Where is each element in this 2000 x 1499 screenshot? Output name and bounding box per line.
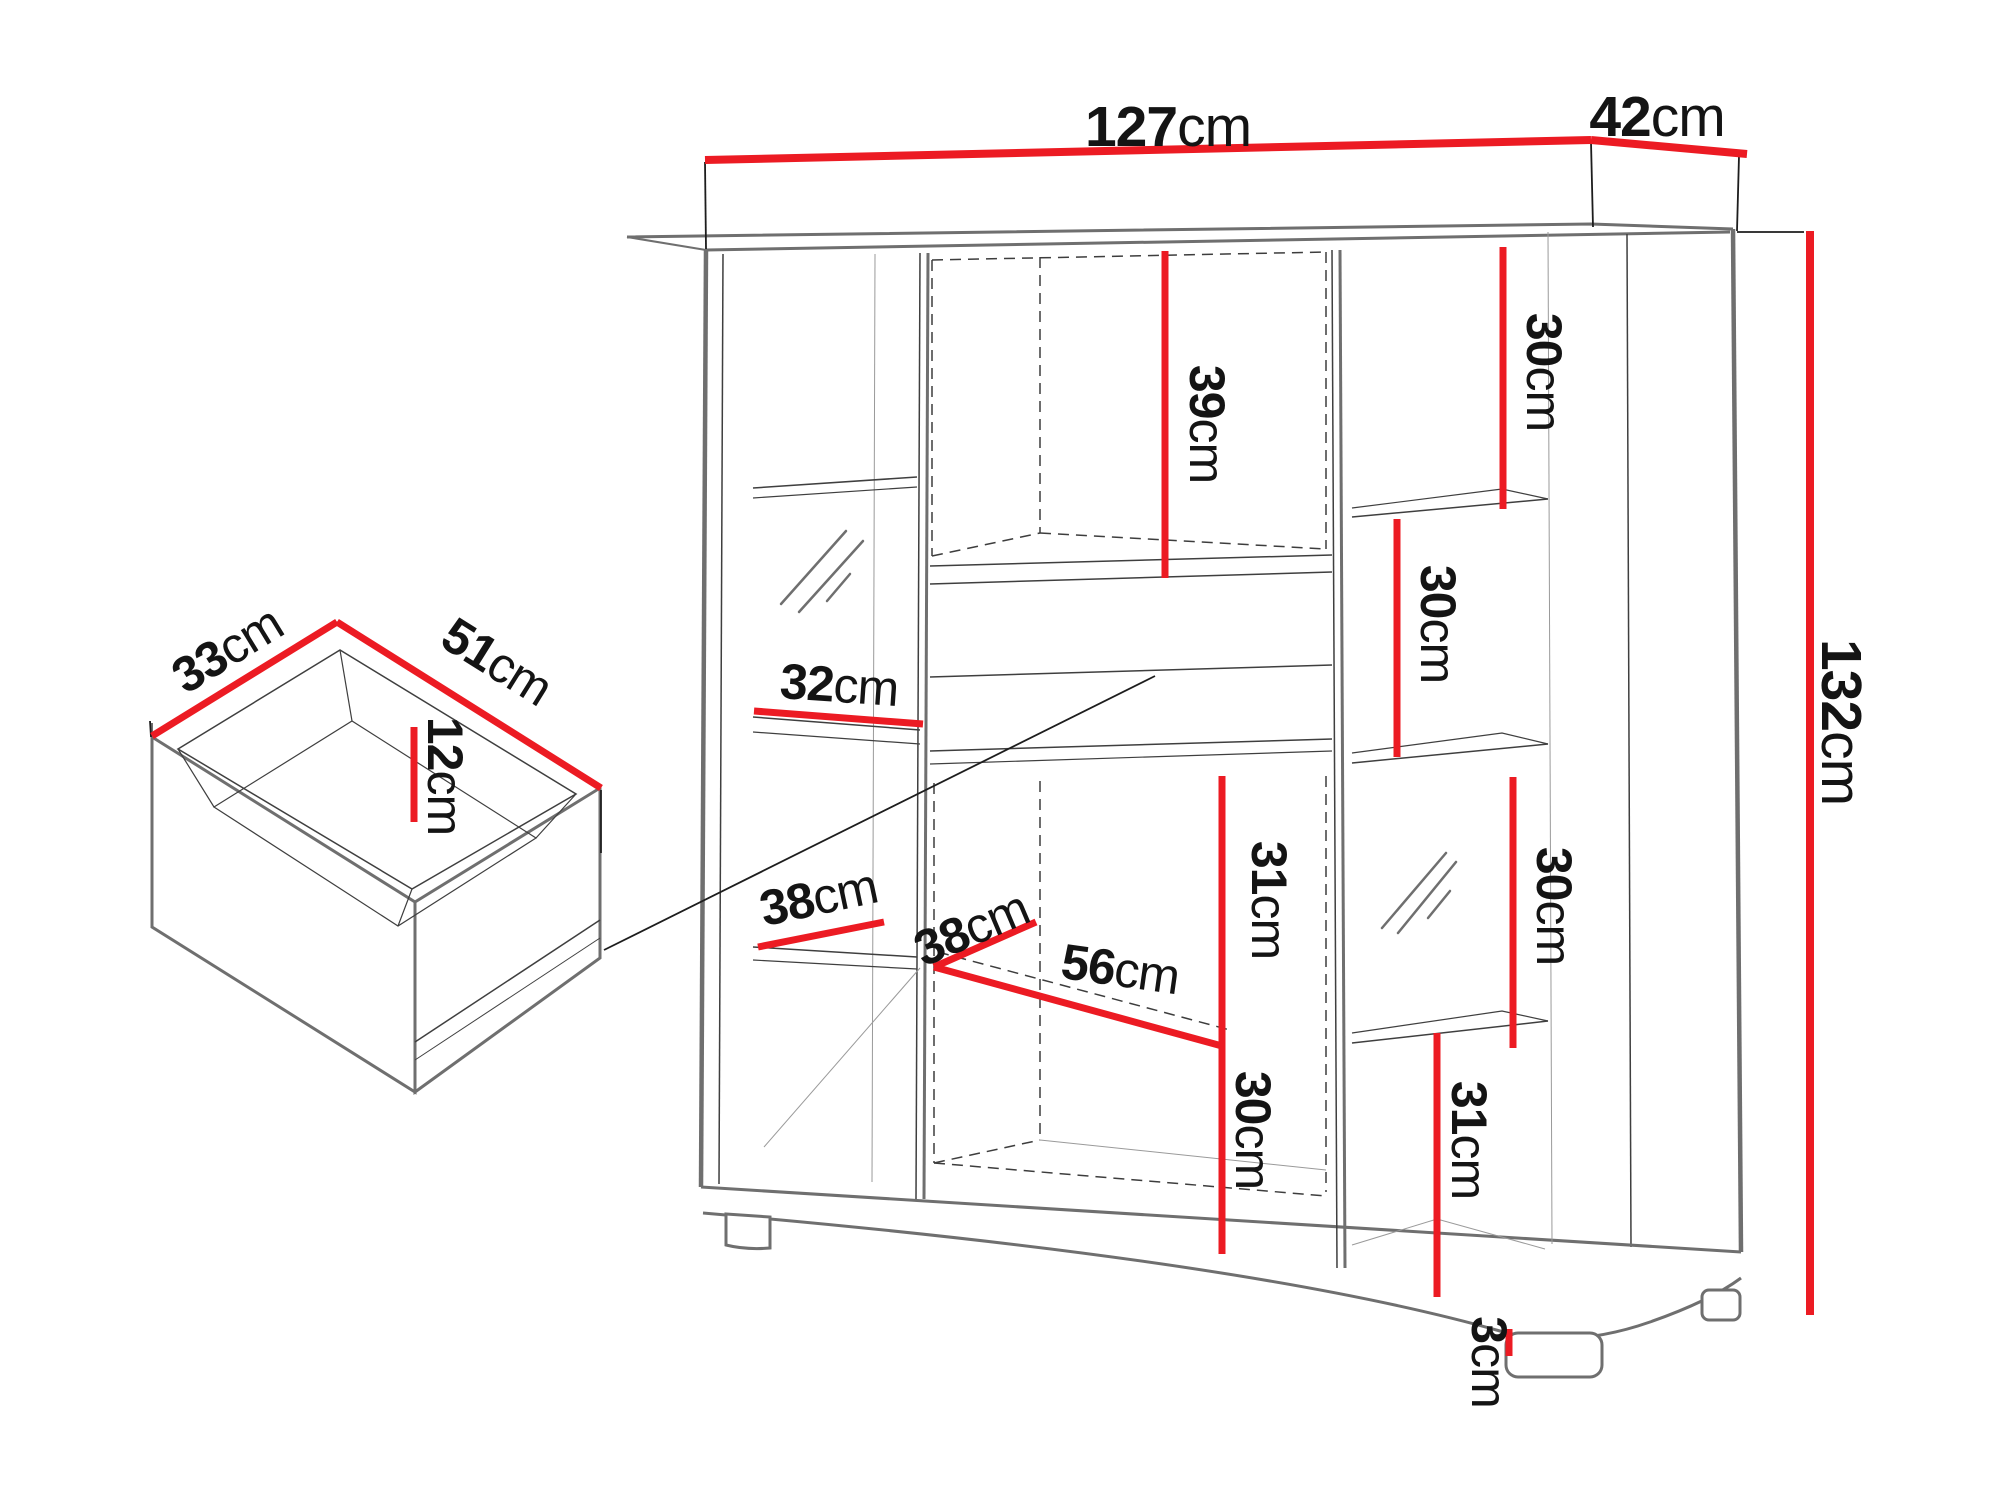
corner-shelf-front bbox=[1352, 499, 1548, 517]
dim-label-30-top: 30cm bbox=[1516, 313, 1572, 431]
tick-width-left bbox=[705, 162, 706, 249]
cabinet-feet bbox=[726, 1214, 1740, 1377]
foot-right-back bbox=[1702, 1290, 1740, 1320]
glass-stroke bbox=[1382, 853, 1446, 928]
shelf-line bbox=[753, 960, 917, 969]
left-column-shelves bbox=[753, 477, 920, 1147]
corner-shelf-top bbox=[1352, 1011, 1548, 1033]
niche-dashed-floor bbox=[1040, 533, 1326, 549]
corner-shelf-front bbox=[1352, 744, 1548, 763]
divider-left bbox=[924, 253, 928, 1199]
niche-dashed-floor bbox=[932, 533, 1040, 556]
dim-label-drawer-12: 12cm bbox=[417, 717, 473, 835]
divider-right-inner bbox=[1332, 250, 1337, 1268]
drawer-front-face bbox=[152, 737, 415, 1092]
foot-right bbox=[1506, 1333, 1602, 1377]
diagram-canvas: 127cm 42cm 132cm 39cm 30cm 30cm 30cm 32c… bbox=[0, 0, 2000, 1499]
dim-label-drawer-51: 51cm bbox=[432, 606, 562, 716]
dim-label-depth: 42cm bbox=[1589, 85, 1724, 149]
foot-left bbox=[726, 1214, 770, 1249]
center-middle-panel bbox=[930, 665, 1332, 764]
shelf-line bbox=[753, 732, 920, 744]
dim-label-3: 3cm bbox=[1461, 1316, 1517, 1407]
floor-corner-line bbox=[764, 968, 920, 1147]
panel-top-line bbox=[930, 665, 1332, 677]
dim-label-31-right: 31cm bbox=[1441, 1081, 1497, 1199]
cabinet-left-stile-inner bbox=[719, 254, 723, 1184]
glass-stroke bbox=[781, 531, 846, 604]
dim-label-56: 56cm bbox=[1058, 933, 1183, 1005]
divider-right bbox=[1340, 250, 1345, 1268]
cabinet-top-left-join bbox=[627, 237, 706, 250]
cabinet-right-edge bbox=[1733, 229, 1741, 1252]
shelf-line bbox=[753, 477, 917, 488]
cabinet-left-edge bbox=[701, 250, 706, 1187]
dim-label-39: 39cm bbox=[1179, 365, 1235, 483]
dim-label-30-middle: 30cm bbox=[1410, 565, 1466, 683]
corner-shelf-top bbox=[1352, 733, 1548, 753]
dim-label-31-center: 31cm bbox=[1241, 841, 1297, 959]
shelf-line bbox=[930, 572, 1332, 584]
shelf-line bbox=[930, 555, 1332, 566]
furniture-dimension-diagram: 127cm 42cm 132cm 39cm 30cm 30cm 30cm 32c… bbox=[0, 0, 2000, 1499]
dimension-labels: 127cm 42cm 132cm 39cm 30cm 30cm 30cm 32c… bbox=[162, 85, 1873, 1408]
dim-label-30-bottom: 30cm bbox=[1225, 1071, 1281, 1189]
niche-dashed-edge bbox=[932, 252, 1326, 260]
glass-pane-icon-right bbox=[1382, 853, 1456, 933]
niche-dashed-floor bbox=[934, 1140, 1040, 1163]
dim-label-30-lower: 30cm bbox=[1526, 847, 1582, 965]
floor-corner-line bbox=[1040, 1140, 1326, 1170]
shelf-line bbox=[753, 487, 917, 498]
glass-stroke bbox=[799, 541, 863, 612]
dim-label-height: 132cm bbox=[1809, 639, 1873, 805]
dim-label-32: 32cm bbox=[778, 653, 900, 717]
dim-label-width: 127cm bbox=[1085, 95, 1251, 159]
tick-drawer-depth bbox=[150, 721, 151, 737]
corner-shelf-top bbox=[1352, 489, 1548, 508]
shelf-line bbox=[930, 739, 1332, 751]
glass-stroke bbox=[1428, 891, 1450, 918]
center-top-niche bbox=[930, 252, 1332, 584]
corner-shelf-front bbox=[1352, 1021, 1548, 1043]
dimension-ticks bbox=[150, 142, 1804, 853]
glass-pane-icon-left bbox=[781, 531, 863, 612]
shelf-line bbox=[753, 947, 917, 957]
tick-depth-right bbox=[1737, 156, 1739, 231]
tick-width-right bbox=[1591, 142, 1593, 227]
cabinet-right-stile-inner bbox=[1627, 234, 1631, 1247]
